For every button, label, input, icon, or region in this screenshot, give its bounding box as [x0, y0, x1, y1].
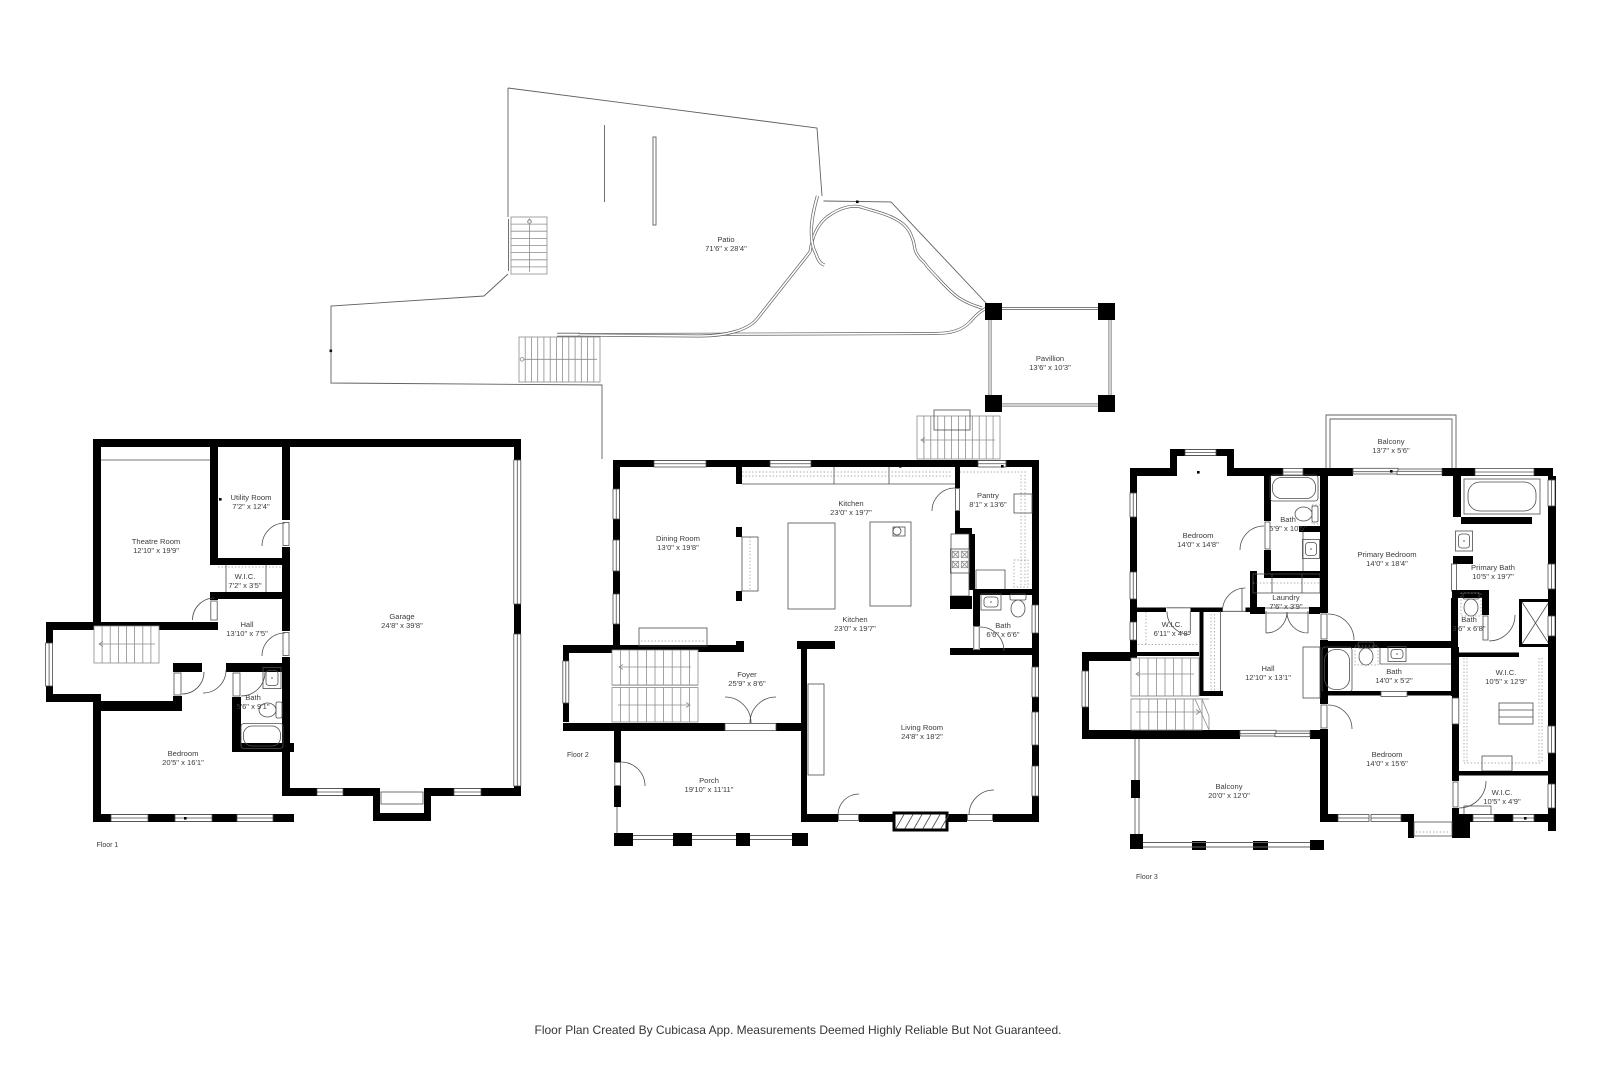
svg-text:Bath: Bath	[1386, 667, 1402, 676]
svg-text:Bedroom: Bedroom	[168, 749, 199, 758]
svg-text:Garage: Garage	[389, 612, 414, 621]
svg-text:Bath: Bath	[1461, 615, 1477, 624]
svg-text:Utility Room: Utility Room	[231, 493, 272, 502]
svg-text:Bath: Bath	[995, 621, 1011, 630]
svg-text:Kitchen: Kitchen	[838, 499, 863, 508]
svg-text:7'2" x 12'4": 7'2" x 12'4"	[232, 502, 270, 511]
svg-text:19'10" x 11'11": 19'10" x 11'11"	[685, 785, 734, 794]
svg-text:6'11" x 4'8": 6'11" x 4'8"	[1154, 629, 1191, 638]
svg-text:71'6" x 28'4": 71'6" x 28'4"	[705, 244, 747, 253]
svg-text:Living Room: Living Room	[901, 723, 943, 732]
svg-text:10'5" x 4'9": 10'5" x 4'9"	[1483, 797, 1521, 806]
svg-text:Hall: Hall	[240, 620, 253, 629]
svg-text:Pavillion: Pavillion	[1036, 354, 1064, 363]
svg-text:13'10" x 7'5": 13'10" x 7'5"	[226, 629, 268, 638]
svg-text:23'0" x 19'7": 23'0" x 19'7"	[830, 508, 872, 517]
svg-text:Porch: Porch	[699, 776, 719, 785]
svg-text:Floor 1: Floor 1	[97, 842, 119, 849]
svg-text:3'6" x 6'8": 3'6" x 6'8"	[1452, 624, 1486, 633]
svg-text:6'6" x 6'6": 6'6" x 6'6"	[986, 630, 1020, 639]
svg-text:25'9" x 8'6": 25'9" x 8'6"	[728, 679, 766, 688]
svg-text:8'1" x 13'6": 8'1" x 13'6"	[969, 500, 1007, 509]
svg-text:Primary Bedroom: Primary Bedroom	[1357, 550, 1416, 559]
svg-text:Balcony: Balcony	[1215, 782, 1242, 791]
svg-text:Floor 3: Floor 3	[1136, 874, 1158, 881]
svg-text:23'0" x 19'7": 23'0" x 19'7"	[834, 624, 876, 633]
svg-text:W.I.C.: W.I.C.	[1496, 668, 1517, 677]
svg-text:24'8" x 39'8": 24'8" x 39'8"	[381, 621, 423, 630]
svg-text:Dining Room: Dining Room	[656, 534, 700, 543]
svg-text:Primary Bath: Primary Bath	[1471, 563, 1515, 572]
svg-text:Foyer: Foyer	[737, 670, 757, 679]
svg-text:12'10" x 19'9": 12'10" x 19'9"	[133, 546, 179, 555]
svg-text:Laundry: Laundry	[1272, 593, 1300, 602]
svg-text:Hall: Hall	[1261, 664, 1274, 673]
svg-text:Patio: Patio	[717, 235, 734, 244]
svg-text:10'5" x 12'9": 10'5" x 12'9"	[1485, 677, 1527, 686]
svg-text:7'6" x 3'9": 7'6" x 3'9"	[1269, 602, 1303, 611]
svg-text:5'6" x 9'1": 5'6" x 9'1"	[236, 702, 270, 711]
svg-text:13'0" x 19'8": 13'0" x 19'8"	[657, 543, 699, 552]
svg-text:Bedroom: Bedroom	[1372, 750, 1403, 759]
svg-text:14'0" x 14'8": 14'0" x 14'8"	[1177, 540, 1219, 549]
svg-text:Bedroom: Bedroom	[1183, 531, 1214, 540]
svg-text:14'0" x 18'4": 14'0" x 18'4"	[1366, 559, 1408, 568]
svg-text:20'5" x 16'1": 20'5" x 16'1"	[162, 758, 204, 767]
svg-text:7'2" x 3'5": 7'2" x 3'5"	[228, 581, 262, 590]
svg-text:14'0" x 5'2": 14'0" x 5'2"	[1375, 676, 1413, 685]
svg-text:13'6" x 10'3": 13'6" x 10'3"	[1029, 363, 1071, 372]
svg-text:Kitchen: Kitchen	[842, 615, 867, 624]
svg-text:Pantry: Pantry	[977, 491, 999, 500]
svg-text:Theatre Room: Theatre Room	[132, 537, 181, 546]
svg-text:W.I.C.: W.I.C.	[1162, 620, 1183, 629]
svg-text:W.I.C.: W.I.C.	[235, 572, 256, 581]
svg-text:Bath: Bath	[1280, 515, 1296, 524]
svg-text:14'0" x 15'6": 14'0" x 15'6"	[1366, 759, 1408, 768]
svg-text:12'10" x 13'1": 12'10" x 13'1"	[1245, 673, 1291, 682]
svg-text:Floor Plan Created By Cubicasa: Floor Plan Created By Cubicasa App. Meas…	[535, 1023, 1062, 1037]
svg-text:W.I.C.: W.I.C.	[1492, 788, 1513, 797]
svg-text:Bath: Bath	[245, 693, 261, 702]
svg-text:20'0" x 12'0": 20'0" x 12'0"	[1208, 791, 1250, 800]
svg-text:24'8" x 18'2": 24'8" x 18'2"	[901, 732, 943, 741]
svg-text:5'9" x 10'5": 5'9" x 10'5"	[1269, 524, 1307, 533]
svg-text:13'7" x 5'6": 13'7" x 5'6"	[1372, 446, 1410, 455]
svg-text:Floor 2: Floor 2	[567, 752, 589, 759]
svg-text:Balcony: Balcony	[1377, 437, 1404, 446]
svg-text:10'5" x 19'7": 10'5" x 19'7"	[1472, 572, 1514, 581]
